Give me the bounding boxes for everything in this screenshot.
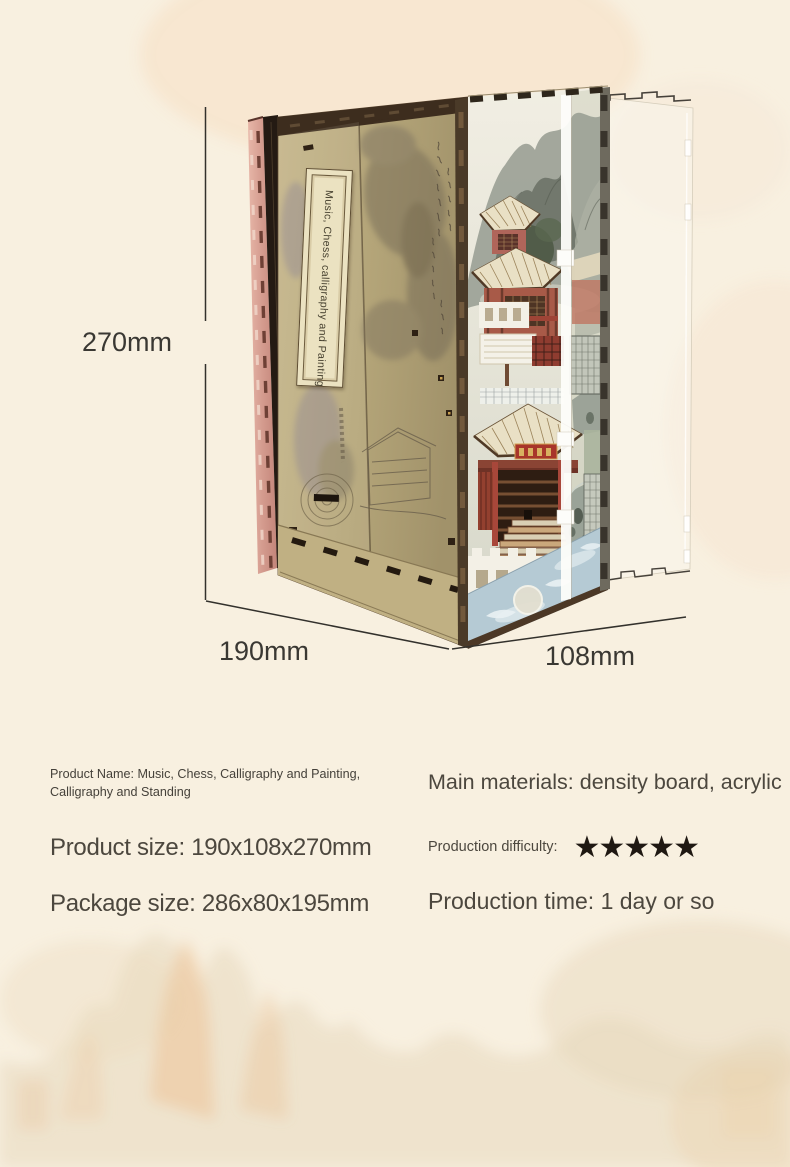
product-photo-illustration: [0, 0, 790, 1167]
dimension-height-label: 270mm: [82, 327, 172, 358]
product-infographic: Music, Chess, calligraphy and Painting 2…: [0, 0, 790, 1167]
package-size-text: Package size: 286x80x195mm: [50, 890, 369, 918]
book-spine-label-frame: Music, Chess, calligraphy and Painting: [302, 174, 346, 381]
book-spine-label-text: Music, Chess, calligraphy and Painting: [314, 190, 334, 387]
product-name-text: Product Name: Music, Chess, Calligraphy …: [50, 765, 402, 802]
dimension-depth-label: 190mm: [219, 636, 309, 667]
teahouse-sign: [515, 444, 557, 459]
interior-scene: [468, 87, 609, 649]
acrylic-panel: [597, 92, 693, 580]
production-difficulty-row: Production difficulty: ★★★★★: [428, 831, 698, 864]
box-right-edge: [600, 87, 610, 591]
dimension-width-label: 108mm: [545, 641, 635, 672]
production-difficulty-label: Production difficulty:: [428, 831, 558, 855]
moon-reflection: [514, 586, 542, 614]
spine-slot: [314, 494, 339, 502]
book-spine-label: Music, Chess, calligraphy and Painting: [296, 168, 353, 388]
main-materials-text: Main materials: density board, acrylic: [428, 770, 782, 795]
production-time-text: Production time: 1 day or so: [428, 888, 714, 915]
product-size-text: Product size: 190x108x270mm: [50, 834, 371, 862]
difficulty-stars: ★★★★★: [574, 831, 698, 864]
